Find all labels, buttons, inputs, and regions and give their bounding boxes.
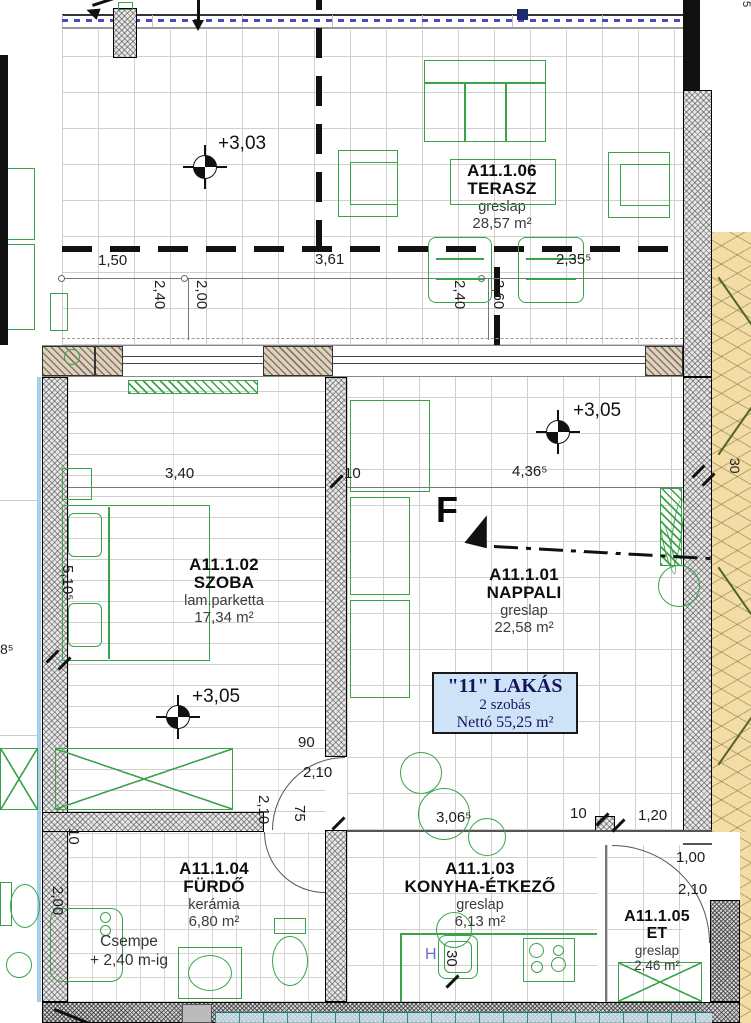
dimension-label: 1,50 — [98, 253, 127, 268]
sofa — [424, 60, 546, 142]
room-finish: greslap — [368, 898, 592, 914]
lounge-table — [518, 237, 584, 303]
dimension-label: 30 — [444, 950, 459, 967]
dimension-label: 2,10 — [256, 795, 271, 824]
railing-glass-line — [62, 19, 700, 22]
window-nappali — [333, 356, 645, 364]
dimension-label: 1,20 — [638, 808, 667, 823]
dimension-label: 10 — [66, 828, 81, 845]
threshold-block — [182, 1004, 212, 1023]
burner-icon — [551, 957, 566, 972]
szoba-nappali-wall — [325, 377, 347, 757]
armchair-cushion — [620, 164, 670, 206]
left-outer-wall-top — [0, 55, 8, 345]
top-right-wall — [683, 0, 700, 90]
apartment-tag: "11" LAKÁS 2 szobás Nettó 55,25 m² — [432, 672, 578, 734]
dimension-label: 4,36⁵ — [512, 464, 547, 479]
down-arrow-line — [197, 0, 200, 22]
railing-bottom-line — [62, 27, 700, 29]
room-label-nappali: A11.1.01 NAPPALI greslap 22,58 m² — [448, 566, 600, 636]
dimension-label: 1,00 — [676, 850, 705, 865]
room-label-furdo: A11.1.04 FÜRDŐ kerámia 6,80 m² — [138, 860, 290, 930]
apartment-rooms-count: 2 szobás — [434, 697, 576, 714]
pillow — [68, 513, 102, 557]
room-area: 22,58 m² — [448, 620, 600, 636]
neighbor-line — [0, 500, 37, 501]
neighbor-line — [0, 735, 37, 736]
dimension-label: 2,00 — [50, 886, 65, 915]
nightstand — [62, 468, 92, 500]
furdo-konyha-wall — [325, 830, 347, 1002]
room-name: SZOBA — [148, 574, 300, 592]
counter-edge — [400, 933, 597, 935]
drain-icon — [64, 349, 80, 365]
room-name: FÜRDŐ — [138, 878, 290, 896]
room-code: A11.1.05 — [607, 908, 707, 925]
room-finish: greslap — [607, 944, 707, 958]
level-label-terasz: +3,03 — [218, 133, 266, 155]
room-finish: kerámia — [138, 898, 290, 914]
et-top-line — [683, 843, 712, 845]
neighbor-fixture — [6, 952, 32, 978]
dimension-label: 5,10⁵ — [60, 565, 75, 600]
room-name: ET — [607, 925, 707, 942]
sofa-section — [350, 600, 410, 698]
room-finish: lam.parketta — [148, 594, 300, 610]
level-label-szoba: +3,05 — [192, 686, 240, 708]
wall-pier — [263, 346, 333, 376]
lounge-slat — [526, 278, 576, 280]
terrain-area-lower — [740, 832, 751, 1023]
dimension-node — [181, 275, 188, 282]
dimension-label: 3,61 — [315, 252, 344, 267]
tiles-note: Csempe + 2,40 m-ig — [70, 932, 188, 971]
room-label-konyha: A11.1.03 KONYHA-ÉTKEZŐ greslap 6,13 m² — [368, 860, 592, 930]
dimension-label: 2,40 — [452, 280, 467, 309]
pillow — [68, 603, 102, 647]
dimension-line — [68, 487, 325, 488]
terrace-edge-dashed — [62, 338, 683, 339]
down-arrowhead-icon — [192, 20, 204, 31]
room-area: 28,57 m² — [428, 216, 576, 232]
dimension-label: 10 — [570, 806, 587, 821]
sofa-section — [350, 497, 410, 595]
dimension-label: 75 — [292, 805, 307, 822]
room-code: A11.1.04 — [138, 860, 290, 878]
armchair — [350, 400, 430, 492]
sofa-line — [424, 82, 546, 84]
room-area: 2,46 m² — [607, 959, 707, 973]
room-name: KONYHA-ÉTKEZŐ — [368, 878, 592, 896]
level-mark-icon — [193, 155, 217, 179]
room-code: A11.1.01 — [448, 566, 600, 584]
bed-line — [108, 507, 110, 659]
label-frame — [450, 159, 556, 205]
dimension-label: 3,60 — [491, 280, 506, 309]
window-szoba — [123, 356, 263, 364]
washbasin — [188, 955, 232, 991]
dimension-label: 8⁵ — [0, 642, 14, 656]
wall-pier — [645, 346, 683, 376]
section-letter: F — [436, 492, 458, 528]
level-label-nappali: +3,05 — [573, 400, 621, 422]
dimension-label: 5 — [740, 1, 751, 7]
dining-chair — [400, 752, 442, 794]
burner-icon — [531, 961, 543, 973]
dimension-label: 2,10 — [303, 765, 332, 780]
floor-plan: H F +3,03 +3,05 +3,05 A11.1.06 TERASZ gr… — [0, 0, 751, 1023]
dimension-label: 2,10 — [678, 882, 707, 897]
apartment-title: "11" LAKÁS — [434, 675, 576, 697]
dimension-label: 2,00 — [194, 280, 209, 309]
neighbor-toilet-bowl — [10, 884, 40, 928]
room-code: A11.1.02 — [148, 556, 300, 574]
tap-icon — [100, 912, 111, 923]
radiator — [128, 380, 258, 394]
tiles-note-line2: + 2,40 m-ig — [70, 951, 188, 970]
room-area: 17,34 m² — [148, 610, 300, 626]
room-label-et: A11.1.05 ET greslap 2,46 m² — [607, 908, 707, 973]
wall-pier — [95, 346, 123, 376]
tiles-note-line1: Csempe — [70, 932, 188, 951]
toilet-bowl — [272, 936, 308, 986]
room-area: 6,80 m² — [138, 914, 290, 930]
sofa-line — [505, 82, 507, 142]
neighbor-cabinet — [0, 748, 38, 810]
dimension-label: 30 — [728, 458, 742, 474]
sofa-line — [464, 82, 466, 142]
dimension-label: 10 — [344, 466, 361, 481]
dimension-label: 2,35⁵ — [556, 252, 591, 267]
dining-chair — [468, 818, 506, 856]
column — [113, 8, 137, 58]
right-terrace-wall — [683, 90, 712, 377]
room-area: 6,13 m² — [368, 914, 592, 930]
dimension-label: 2,40 — [152, 280, 167, 309]
dimension-node — [58, 275, 65, 282]
room-label-terasz: A11.1.06 TERASZ greslap 28,57 m² — [428, 162, 576, 232]
plant-pot — [658, 565, 700, 607]
dimension-line — [188, 278, 189, 340]
room-name: NAPPALI — [448, 584, 600, 602]
dimension-label: 3,40 — [165, 466, 194, 481]
room-label-szoba: A11.1.02 SZOBA lam.parketta 17,34 m² — [148, 556, 300, 626]
survey-mark — [517, 9, 528, 20]
level-mark-icon — [546, 420, 570, 444]
dimension-label: 90 — [298, 735, 315, 750]
apartment-net-area: Nettó 55,25 m² — [434, 714, 576, 732]
axis-dashed-h — [62, 246, 712, 252]
burner-icon — [529, 943, 544, 958]
right-outer-wall-lower — [710, 900, 740, 1002]
room-code: A11.1.03 — [368, 860, 592, 878]
dimension-line — [62, 278, 688, 279]
lounge-slat — [436, 258, 484, 260]
level-mark-icon — [166, 705, 190, 729]
wardrobe — [55, 748, 233, 810]
hot-water-mark: H — [425, 946, 437, 964]
counter-edge — [400, 933, 402, 1002]
burner-icon — [553, 945, 564, 956]
nappali-konyha-line — [347, 830, 712, 832]
axis-dashed-v1 — [316, 0, 322, 250]
room-finish: greslap — [448, 604, 600, 620]
column-cap — [118, 2, 133, 10]
planter — [50, 293, 68, 331]
neighbor-terrace-tiles — [215, 1012, 712, 1023]
dimension-label: 3,06⁵ — [436, 810, 471, 825]
armchair-cushion — [350, 162, 398, 205]
